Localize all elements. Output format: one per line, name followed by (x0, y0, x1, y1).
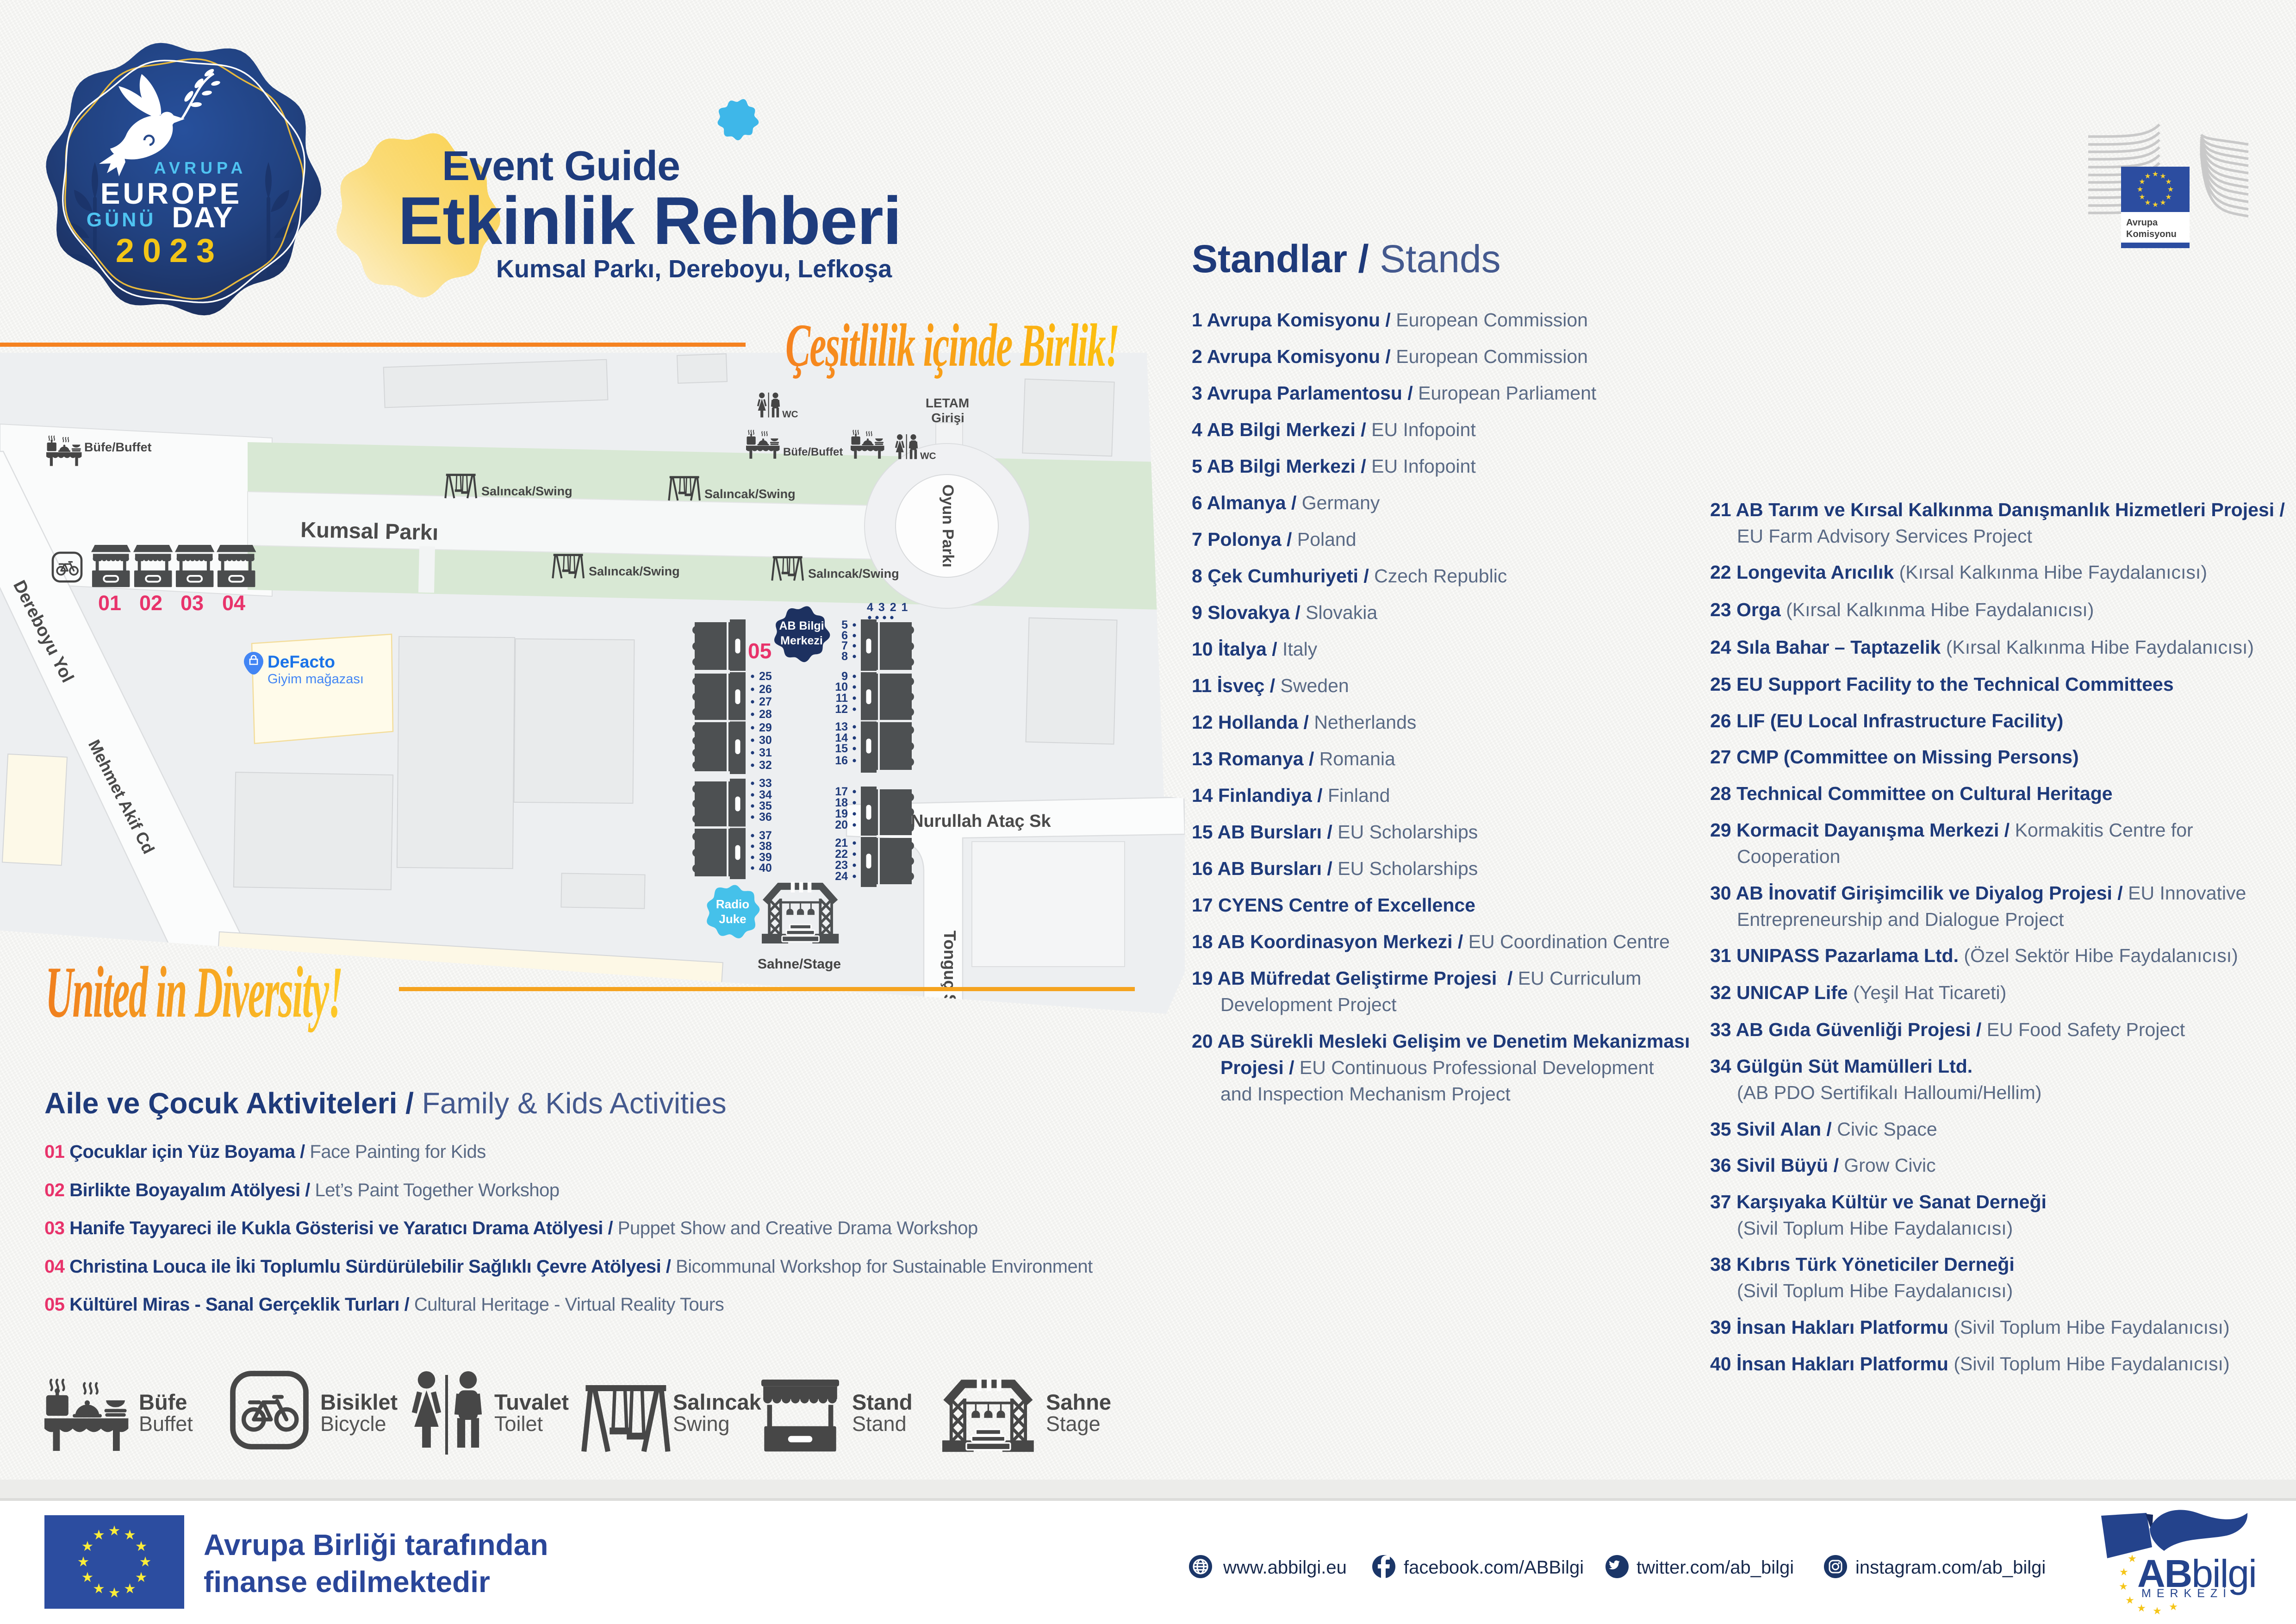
svg-text:DeFacto: DeFacto (268, 652, 335, 671)
svg-text:04: 04 (222, 591, 245, 615)
svg-text:26: 26 (759, 683, 772, 696)
svg-text:40: 40 (759, 862, 772, 874)
svg-text:AVRUPA: AVRUPA (154, 158, 247, 177)
svg-text:28: 28 (759, 708, 772, 721)
svg-text:Merkezi: Merkezi (780, 634, 823, 647)
svg-text:Giyim mağazası: Giyim mağazası (268, 672, 364, 687)
svg-text:Etkinlik Rehberi: Etkinlik Rehberi (398, 183, 901, 258)
svg-text:Salıncak/Swing: Salıncak/Swing (704, 487, 796, 501)
svg-text:16: 16 (835, 754, 848, 767)
svg-text:DAY: DAY (172, 201, 233, 234)
svg-text:Salıncak/Swing: Salıncak/Swing (589, 564, 680, 578)
svg-text:02: 02 (139, 591, 162, 615)
svg-text:31: 31 (759, 746, 772, 759)
svg-text:15: 15 (835, 742, 848, 755)
svg-text:Çeşitlilik içinde Birlik!: Çeşitlilik içinde Birlik! (785, 311, 1119, 379)
svg-text:Tonguç Sk: Tonguç Sk (940, 931, 959, 1015)
svg-text:Avrupa: Avrupa (2126, 218, 2158, 228)
svg-text:2023: 2023 (116, 232, 223, 269)
svg-text:32: 32 (759, 759, 772, 772)
svg-text:Radio: Radio (716, 897, 749, 911)
svg-text:4 3 2 1: 4 3 2 1 (867, 601, 908, 614)
svg-text:MERKEZİ: MERKEZİ (2141, 1587, 2232, 1600)
svg-text:WC: WC (920, 451, 936, 462)
svg-text:Kumsal Parkı, Dereboyu, Lefkoş: Kumsal Parkı, Dereboyu, Lefkoşa (496, 255, 892, 283)
svg-text:Girişi: Girişi (931, 411, 964, 425)
svg-text:GÜNÜ: GÜNÜ (87, 209, 156, 231)
svg-text:03: 03 (180, 591, 204, 615)
svg-text:25: 25 (759, 670, 772, 683)
svg-text:12: 12 (835, 703, 848, 716)
svg-text:Büfe/Buffet: Büfe/Buffet (783, 446, 843, 458)
svg-text:United in Diversity!: United in Diversity! (45, 952, 342, 1033)
svg-text:Event Guide: Event Guide (442, 143, 680, 189)
svg-text:33: 33 (759, 777, 772, 790)
svg-text:8: 8 (841, 650, 848, 663)
svg-text:Oyun Parkı: Oyun Parkı (939, 484, 957, 568)
svg-text:29: 29 (759, 721, 772, 734)
svg-text:01: 01 (98, 591, 121, 615)
svg-text:WC: WC (782, 409, 798, 420)
svg-text:20: 20 (835, 818, 848, 831)
svg-text:24: 24 (835, 870, 848, 883)
svg-text:Nurullah Ataç Sk: Nurullah Ataç Sk (911, 812, 1052, 831)
svg-text:AB Bilgi: AB Bilgi (779, 619, 824, 632)
svg-text:05: 05 (748, 639, 772, 663)
svg-text:Kumsal Parkı: Kumsal Parkı (300, 517, 439, 544)
svg-text:36: 36 (759, 811, 772, 824)
svg-text:LETAM: LETAM (926, 396, 969, 410)
svg-text:Sahne/Stage: Sahne/Stage (758, 956, 841, 972)
svg-text:Salıncak/Swing: Salıncak/Swing (481, 484, 572, 498)
svg-text:Büfe/Buffet: Büfe/Buffet (84, 440, 151, 454)
svg-text:27: 27 (759, 695, 772, 708)
svg-text:Komisyonu: Komisyonu (2126, 229, 2177, 239)
svg-text:Salıncak/Swing: Salıncak/Swing (808, 567, 899, 581)
svg-text:Juke: Juke (719, 912, 746, 926)
svg-text:30: 30 (759, 734, 772, 747)
